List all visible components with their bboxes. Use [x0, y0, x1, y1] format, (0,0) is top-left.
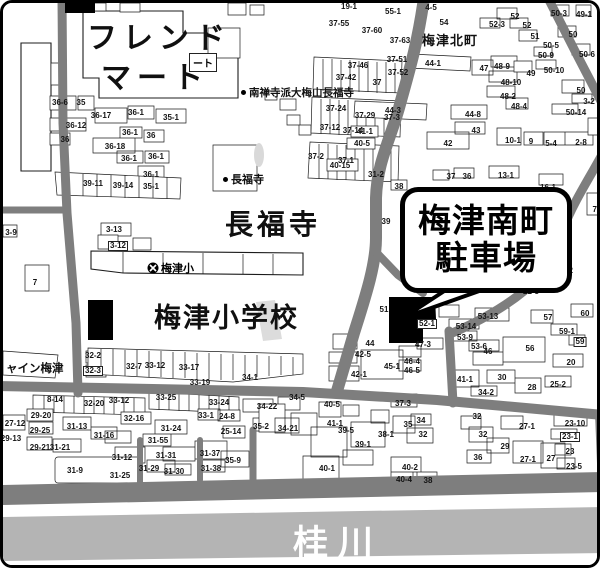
lot-number-label: 30: [498, 374, 507, 382]
lot-number-label: 28: [528, 384, 537, 392]
lot-number-label: 51: [380, 306, 389, 314]
lot-number-label: 36-18: [105, 143, 125, 151]
lot-number-label: 40-15: [330, 162, 350, 170]
lot-number-label: 38: [395, 183, 404, 191]
lot-number-label: 42-5: [355, 351, 371, 359]
umezu-kitamachi-label: 梅津北町: [422, 30, 478, 49]
lot-number-label: 27-12: [5, 420, 25, 428]
lot-number-label: 29-21: [30, 444, 50, 452]
lot-number-label: 49-1: [576, 11, 592, 19]
lot-number-label: 48-4: [511, 103, 527, 111]
lot-number-label: 36-17: [91, 112, 111, 120]
lot-number-label: 24-8: [219, 413, 235, 421]
umezu-elementary-label: 梅津小学校: [154, 296, 299, 335]
lot-number-label: 36: [147, 132, 156, 140]
lot-number-label: 37-55: [329, 20, 349, 28]
friend-mart-label-line1: フレンド: [87, 13, 231, 57]
lot-number-label: 42-1: [351, 371, 367, 379]
school-marker: 梅津小: [147, 260, 194, 276]
lot-number-label: 31-13: [67, 423, 87, 431]
lot-number-label: 46-5: [404, 367, 420, 375]
lot-number-label: 44: [366, 340, 375, 348]
lot-number-label: 52-3: [489, 21, 505, 29]
lot-number-label: 36-1: [143, 171, 159, 179]
lot-number-label: 46: [484, 348, 493, 356]
nanzenji-temple-poi-label: 南禅寺派大梅山長福寺: [249, 85, 354, 100]
lot-number-label: 50-5: [543, 42, 559, 50]
lot-number-label: 31-55: [148, 437, 168, 445]
lot-number-label: 44-8: [465, 111, 481, 119]
lot-number-label: 27-1: [520, 456, 536, 464]
lot-number-label: 36-1: [122, 129, 138, 137]
lot-number-label: 48-10: [501, 79, 521, 87]
lot-number-label: 50-6: [579, 51, 595, 59]
school-marker-label: 梅津小: [161, 260, 194, 276]
lot-number-label: 52: [511, 13, 520, 21]
lot-number-label: 27: [547, 455, 556, 463]
lot-number-label: 33-12: [145, 362, 165, 370]
school-icon: [147, 262, 159, 274]
lot-number-label: 37-29: [355, 112, 375, 120]
lot-number-label: 32: [419, 431, 428, 439]
lot-number-label: 48-9: [494, 63, 510, 71]
lot-number-label: 52-1: [417, 319, 437, 329]
lot-number-label: 3-13: [106, 226, 122, 234]
lot-number-label: 37: [447, 173, 456, 181]
lot-number-label: 5-4: [545, 140, 557, 148]
lot-number-label: 31-30: [164, 468, 184, 476]
lot-number-label: 4-5: [425, 4, 437, 12]
lot-number-label: 42: [444, 140, 453, 148]
lot-number-label: 45-1: [384, 363, 400, 371]
lot-number-label: 2-8: [575, 139, 587, 147]
shine-umezu-label: ャイン梅津: [6, 360, 64, 376]
lot-number-label: 51: [531, 33, 540, 41]
lot-number-label: 33-19: [190, 379, 210, 387]
lot-number-label: 35: [77, 99, 86, 107]
lot-number-label: 32-2: [85, 352, 101, 360]
lot-number-label: 60: [581, 310, 590, 318]
lot-number-label: 32-7: [126, 363, 142, 371]
lot-number-label: 32-3: [83, 366, 103, 376]
lot-number-label: 31-12: [112, 454, 132, 462]
lot-number-label: 52: [523, 22, 532, 30]
lot-number-label: 33-25: [156, 394, 176, 402]
chofukuji-large-label: 長福寺: [225, 203, 321, 243]
lot-number-label: 43: [472, 127, 481, 135]
lot-number-label: 23-5: [566, 463, 582, 471]
lot-number-label: 32-20: [84, 400, 104, 408]
lot-number-label: 53-13: [478, 313, 498, 321]
lot-number-label: 33-24: [209, 399, 229, 407]
lot-number-label: 44-1: [425, 60, 441, 68]
lot-number-label: 55-1: [385, 8, 401, 16]
lot-number-label: 50-10: [544, 67, 564, 75]
lot-number-label: 32-16: [124, 415, 144, 423]
lot-number-label: 25-14: [221, 428, 241, 436]
cadastral-map: 36-63536-1736-135-136-123636-13636-1836-…: [0, 0, 600, 568]
lot-number-label: 50: [569, 31, 578, 39]
lot-number-label: 40-2: [402, 464, 418, 472]
lot-number-label: 29-20: [31, 412, 51, 420]
lot-number-label: 31-24: [161, 425, 181, 433]
lot-number-label: 46-4: [404, 358, 420, 366]
lot-number-label: 34-21: [278, 425, 298, 433]
lot-number-label: 19-1: [341, 3, 357, 11]
lot-number-label: 35: [404, 421, 413, 429]
lot-number-label: 29: [501, 443, 510, 451]
lot-number-label: 31-25: [110, 472, 130, 480]
lot-number-label: 31-2: [368, 171, 384, 179]
katsura-river-label: 桂川: [293, 515, 383, 566]
lot-number-label: 39-5: [338, 427, 354, 435]
lot-number-label: 39: [382, 218, 391, 226]
lot-number-label: 37-42: [336, 74, 356, 82]
lot-number-label: 40-5: [324, 401, 340, 409]
lot-number-label: 34-5: [289, 394, 305, 402]
lot-number-label: 33-17: [179, 364, 199, 372]
lot-number-label: 34: [417, 417, 426, 425]
lot-number-label: 13-1: [498, 172, 514, 180]
lot-number-label: 47-3: [415, 341, 431, 349]
lot-number-label: 36-1: [121, 155, 137, 163]
lot-number-label: 8-14: [47, 396, 63, 404]
lot-number-label: 38-1: [378, 431, 394, 439]
lot-number-label: 37-52: [388, 69, 408, 77]
lot-number-label: 44-3: [385, 107, 401, 115]
lot-number-label: 40-4: [396, 476, 412, 484]
lot-number-label: 35-1: [163, 114, 179, 122]
lot-number-label: 33-1: [198, 412, 214, 420]
lot-number-label: 34-2: [478, 389, 494, 397]
lot-number-label: 34-22: [257, 403, 277, 411]
lot-number-label: 23: [566, 448, 575, 456]
nanzenji-temple-poi: 南禅寺派大梅山長福寺: [241, 85, 354, 100]
lot-number-label: 47: [480, 65, 489, 73]
lot-number-label: 25-2: [550, 381, 566, 389]
lot-number-label: 36-12: [66, 122, 86, 130]
lot-number-label: 41-1: [357, 128, 373, 136]
lot-number-label: 35-9: [225, 457, 241, 465]
lot-number-label: 54: [440, 19, 449, 27]
lot-number-label: 35-2: [253, 423, 269, 431]
lot-number-label: 31-31: [156, 452, 176, 460]
lot-number-label: 48-2: [500, 93, 516, 101]
lot-number-label: 40-1: [319, 465, 335, 473]
lot-number-label: 37-2: [308, 153, 324, 161]
lot-number-label: 33-12: [109, 397, 129, 405]
lot-number-label: 39-14: [113, 182, 133, 190]
lot-number-label: 50-3: [551, 10, 567, 18]
lot-number-label: 59: [574, 337, 587, 347]
lot-number-label: 3-2: [583, 98, 595, 106]
lot-number-label: 36-6: [52, 99, 68, 107]
poi-dot: [223, 177, 228, 182]
lot-number-label: 23-10: [565, 420, 585, 428]
lot-number-label: 39-1: [355, 441, 371, 449]
lot-number-label: 31-21: [50, 444, 70, 452]
lot-number-label: 35-1: [143, 183, 159, 191]
lot-number-label: 37-60: [362, 27, 382, 35]
chofukuji-poi-label: 長福寺: [231, 171, 264, 187]
lot-number-label: 29-25: [30, 427, 50, 435]
lot-number-label: 3-12: [108, 241, 128, 251]
lot-number-label: 37-12: [320, 124, 340, 132]
lot-number-label: 20: [567, 359, 576, 367]
lot-number-label: 23-1: [560, 432, 580, 442]
lot-number-label: 40-5: [354, 140, 370, 148]
friend-mart-small-tag: ート: [189, 53, 217, 72]
lot-number-label: 53-14: [456, 323, 476, 331]
lot-number-label: 57: [544, 314, 553, 322]
lot-number-label: 37-3: [395, 400, 411, 408]
lot-number-label: 36-1: [148, 153, 164, 161]
lot-number-label: 31-16: [94, 432, 114, 440]
lot-number-label: 37-46: [348, 62, 368, 70]
lot-number-label: 37: [373, 79, 382, 87]
lot-number-label: 50: [577, 87, 586, 95]
lot-number-label: 32: [479, 431, 488, 439]
lot-number-label: 56: [526, 345, 535, 353]
parking-callout-line2: 駐車場: [435, 240, 537, 277]
lot-number-label: 39-11: [83, 180, 103, 188]
lot-number-label: 59-1: [559, 328, 575, 336]
lot-number-label: 29-13: [1, 435, 21, 443]
poi-dot: [241, 90, 246, 95]
lot-number-label: 37-24: [326, 105, 346, 113]
lot-number-label: 72: [593, 206, 600, 214]
parking-callout: 梅津南町 駐車場: [400, 187, 572, 293]
lot-number-label: 27-1: [519, 423, 535, 431]
lot-number-label: 7: [33, 279, 37, 287]
lot-number-label: 53-9: [457, 334, 473, 342]
lot-number-label: 31-9: [67, 467, 83, 475]
lot-number-label: 50-9: [538, 52, 554, 60]
lot-number-label: 32: [473, 413, 482, 421]
lot-number-label: 3-9: [5, 229, 17, 237]
lot-number-label: 49: [527, 70, 536, 78]
chofukuji-poi: 長福寺: [223, 171, 264, 187]
lot-number-label: 38: [424, 477, 433, 485]
lot-number-label: 31-38: [201, 465, 221, 473]
lot-number-label: 41-1: [457, 376, 473, 384]
lot-number-label: 37-63: [390, 37, 410, 45]
lot-number-label: 36-1: [128, 109, 144, 117]
lot-number-label: 36: [474, 454, 483, 462]
lot-number-label: 37-3: [384, 114, 400, 122]
lot-number-label: 31-29: [139, 465, 159, 473]
parking-callout-line1: 梅津南町: [418, 203, 554, 240]
lot-number-label: 36: [463, 173, 472, 181]
lot-number-label: 37-51: [387, 56, 407, 64]
lot-number-label: 10-1: [505, 137, 521, 145]
lot-number-label: 9: [529, 138, 533, 146]
lot-number-label: 50-14: [566, 109, 586, 117]
lot-number-label: 36: [61, 136, 70, 144]
lot-number-label: 31-37: [200, 450, 220, 458]
lot-number-label: 34-1: [242, 374, 258, 382]
